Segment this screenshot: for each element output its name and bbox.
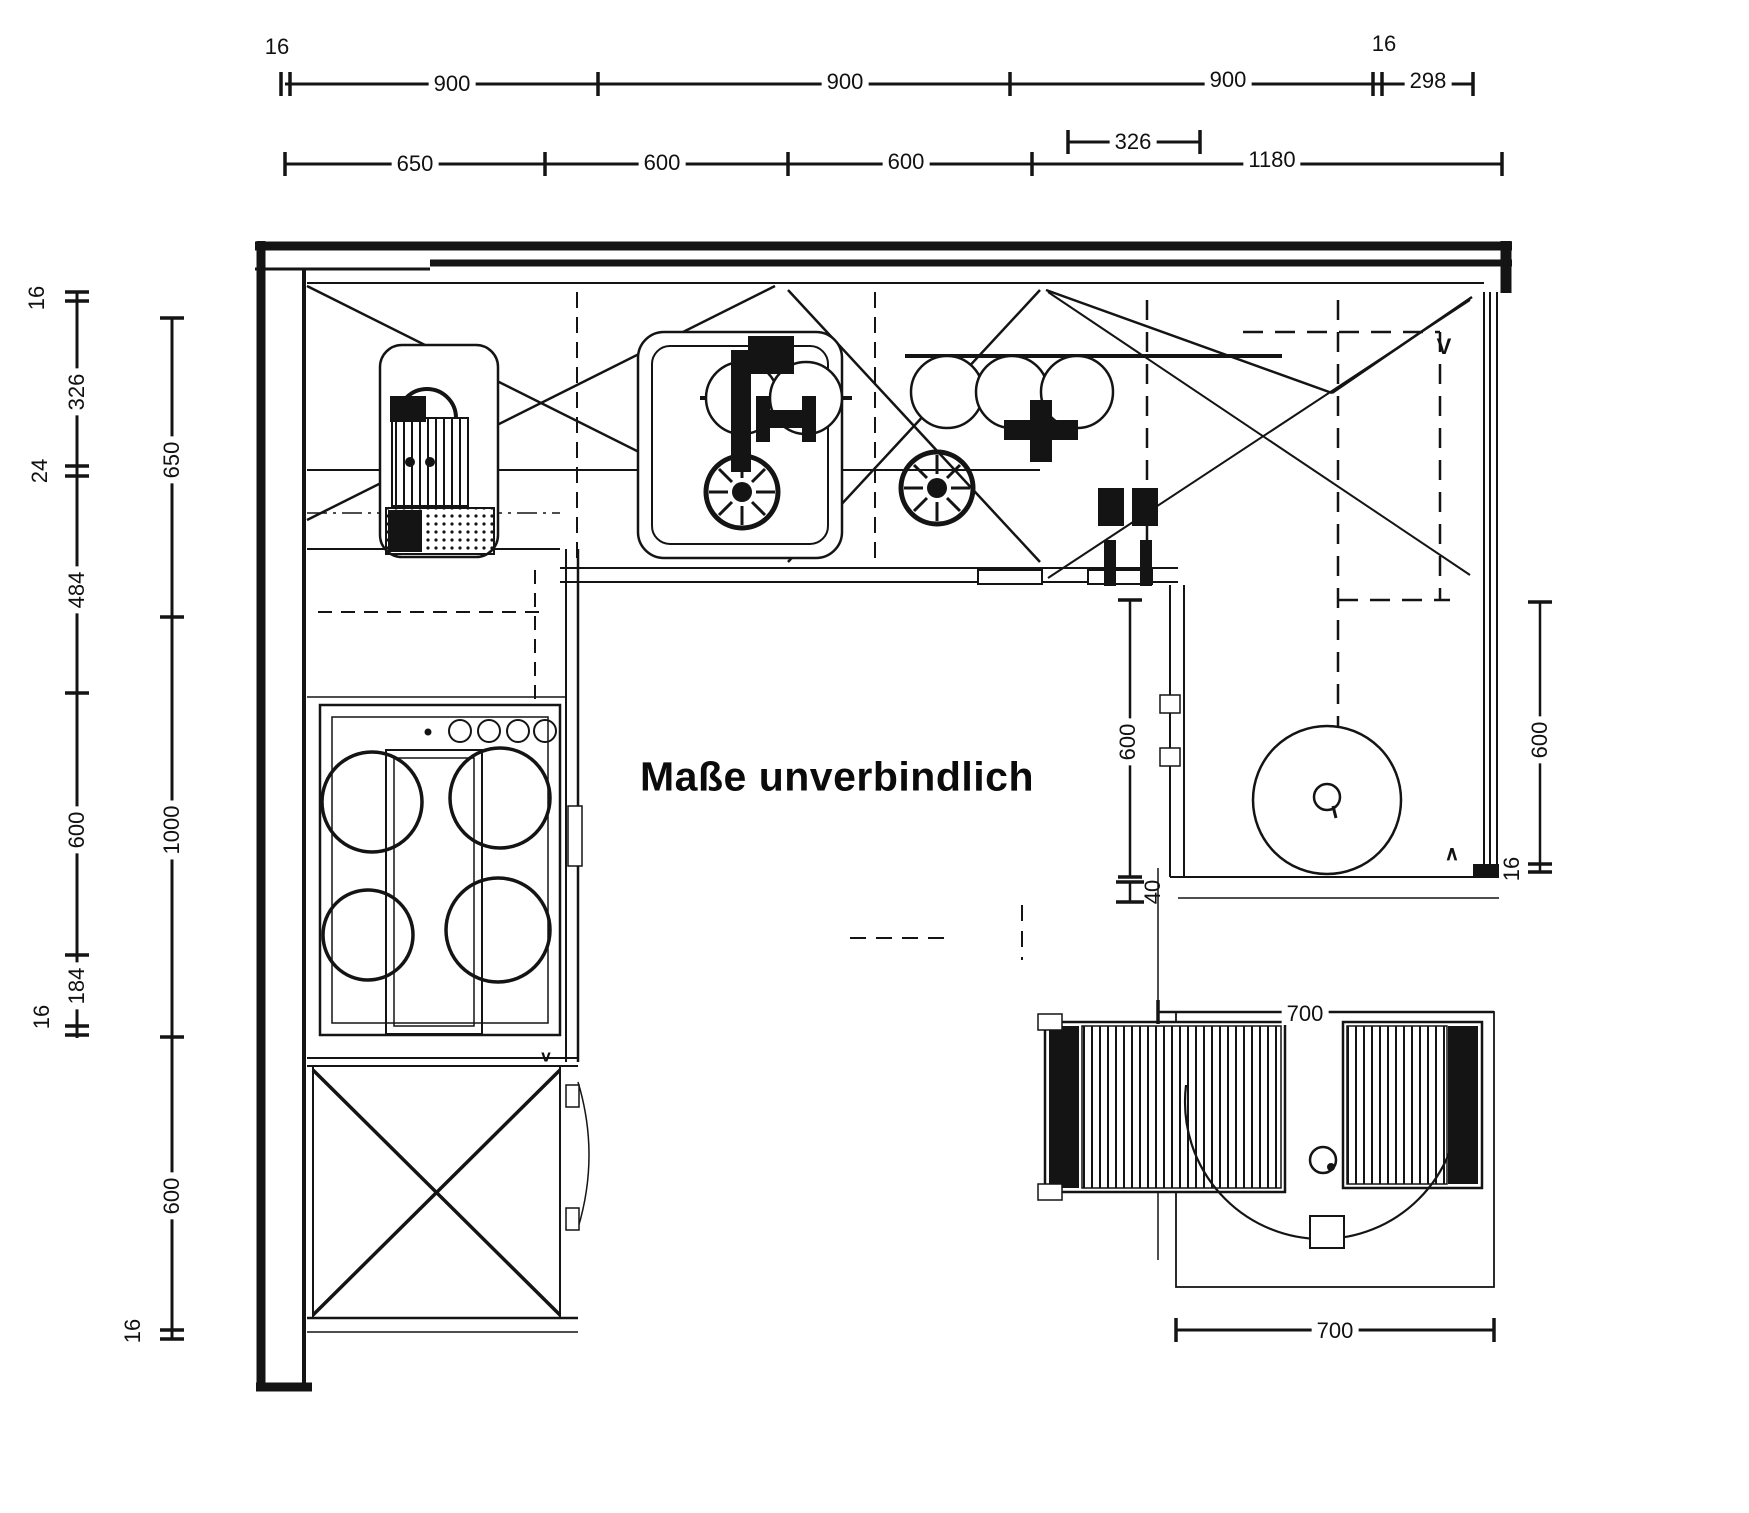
dim-label-650: 650 <box>392 153 439 175</box>
dining-set <box>1038 868 1494 1287</box>
door-direction-mark: ∧ <box>1445 844 1460 864</box>
dim-label-16: 16 <box>26 286 48 310</box>
dim-label-900: 900 <box>429 73 476 95</box>
corner-carousel <box>1253 726 1401 874</box>
left-wall <box>256 241 312 1390</box>
cooktop <box>320 705 560 1035</box>
table-leg <box>1310 1216 1344 1248</box>
dim-label-1180: 1180 <box>1243 149 1300 171</box>
door-direction-mark: v <box>541 1048 550 1065</box>
corner-cabinet-line <box>1048 300 1470 578</box>
dim-label-600: 600 <box>1117 719 1139 766</box>
top-wall <box>255 241 1512 293</box>
dim-label-1000: 1000 <box>161 801 183 860</box>
door-handle <box>566 1085 579 1107</box>
dim-label-16: 16 <box>1372 33 1396 55</box>
dim-label-16: 16 <box>31 1005 53 1029</box>
right-counter-run <box>1147 292 1499 898</box>
dim-label-16: 16 <box>1501 857 1523 881</box>
dim-label-484: 484 <box>66 567 88 614</box>
dim-label-326: 326 <box>66 369 88 416</box>
dim-label-40: 40 <box>1142 880 1164 904</box>
left-base-column <box>307 549 1022 1332</box>
dim-label-16: 16 <box>265 36 289 58</box>
dim-label-24: 24 <box>29 459 51 483</box>
chair-right <box>1343 1022 1482 1188</box>
dim-label-700: 700 <box>1282 1003 1329 1025</box>
door-handle <box>566 1208 579 1230</box>
dim-label-700: 700 <box>1312 1320 1359 1342</box>
drawer-handle <box>978 570 1042 584</box>
dim-label-326: 326 <box>1110 131 1157 153</box>
dim-label-298: 298 <box>1405 70 1452 92</box>
tall-cabinet <box>307 1066 589 1332</box>
drawer-handle <box>1160 695 1180 713</box>
dim-label-600: 600 <box>883 151 930 173</box>
small-sink-unit <box>380 345 498 557</box>
dim-label-184: 184 <box>66 963 88 1010</box>
kitchen-floorplan-page: 16 900 900 900 16 298 650 600 600 1180 3… <box>0 0 1749 1513</box>
disclaimer-text: Maße unverbindlich <box>640 754 1034 801</box>
corner-cabinet-mark: V <box>1437 336 1452 358</box>
door-handle <box>568 806 582 866</box>
dim-label-900: 900 <box>822 71 869 93</box>
corner-cabinet-line <box>1048 292 1470 575</box>
drawer-handle <box>1160 748 1180 766</box>
dim-label-16: 16 <box>122 1319 144 1343</box>
dim-label-600: 600 <box>639 152 686 174</box>
dim-label-650: 650 <box>161 437 183 484</box>
dim-label-600: 600 <box>66 807 88 854</box>
dim-label-600: 600 <box>161 1173 183 1220</box>
dim-label-900: 900 <box>1205 69 1252 91</box>
dim-label-600: 600 <box>1529 717 1551 764</box>
chair-left <box>1038 1014 1285 1200</box>
